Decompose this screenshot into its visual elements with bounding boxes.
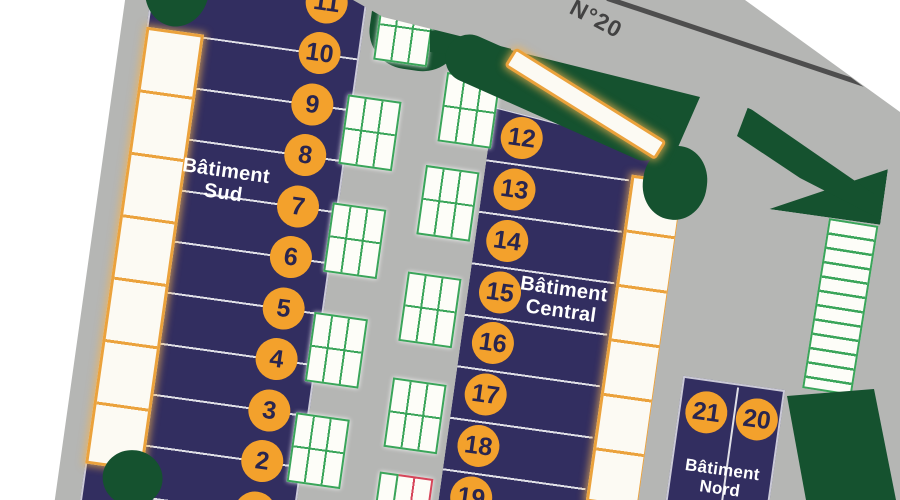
hedge-overlay-layer bbox=[0, 0, 900, 500]
residence-site-plan: Bâtiment Sud 11 10 9 8 7 6 5 4 3 2 1 Bât… bbox=[0, 0, 900, 500]
